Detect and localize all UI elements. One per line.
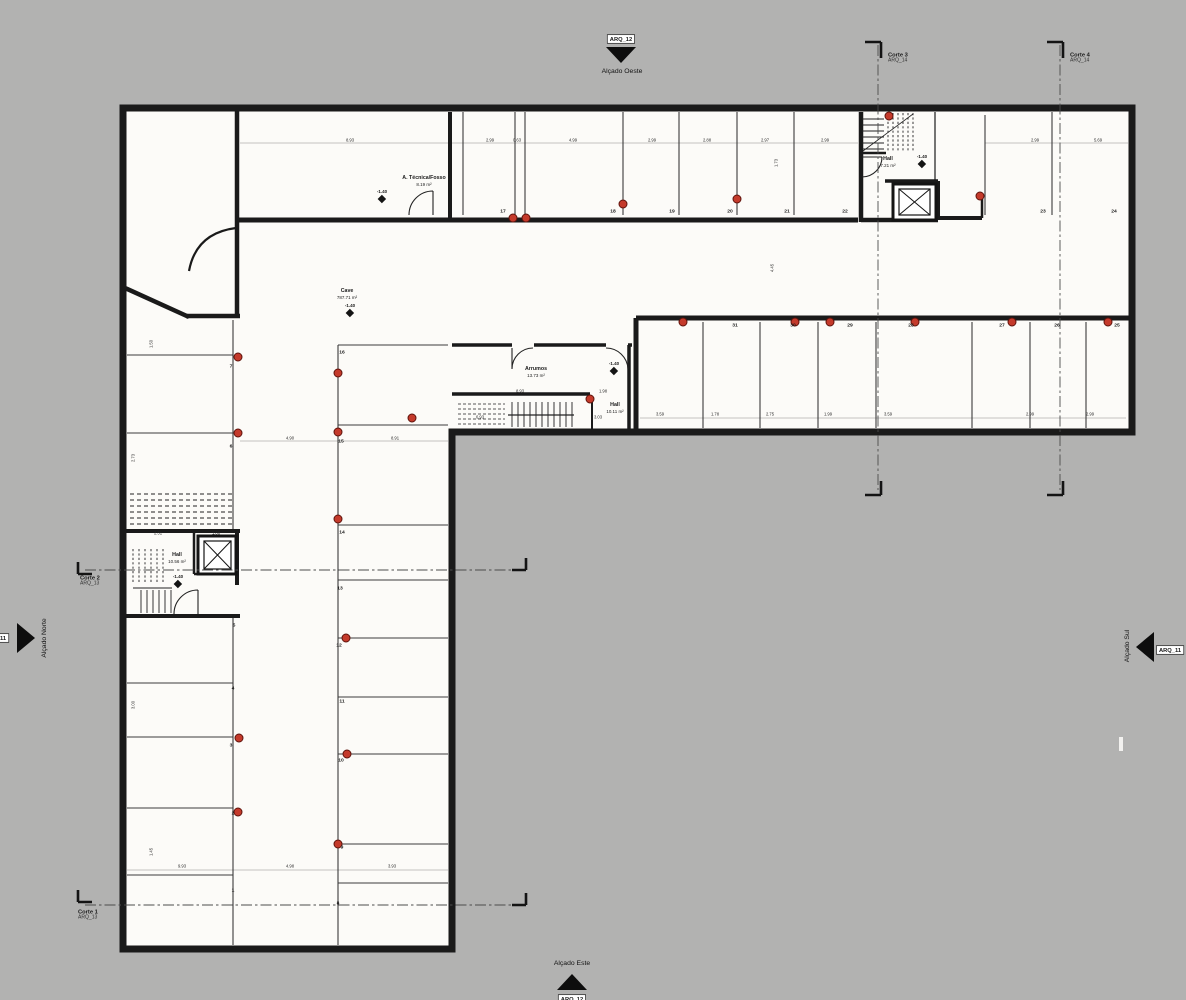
floor-plan-drawing: [0, 0, 1186, 1000]
south-elevation-tag: ARQ_11: [1156, 645, 1184, 654]
east-elevation-arrow-icon: [557, 974, 587, 990]
east-elevation-label: Alçado Este: [554, 959, 590, 967]
south-elevation-label: Alçado Sul: [1123, 630, 1131, 663]
west-elevation-label: Alçado Oeste: [602, 67, 643, 75]
elevator-top-right: [893, 184, 936, 220]
elevator-bottom-left: [198, 536, 236, 574]
artifact-mark: [1119, 737, 1123, 751]
north-elevation-tag: ARQ_11: [0, 633, 9, 642]
floor-plan-canvas: 1718192021222324252627282930311615141312…: [0, 0, 1186, 1000]
west-elevation-tag: ARQ_12: [607, 34, 635, 43]
north-elevation-arrow-icon: [17, 623, 35, 653]
north-elevation-label: Alçado Norte: [40, 618, 48, 657]
east-elevation-tag: ARQ_12: [558, 994, 586, 1000]
floor-slab: [123, 108, 1132, 949]
west-elevation-arrow-icon: [606, 47, 636, 63]
south-elevation-arrow-icon: [1136, 632, 1154, 662]
